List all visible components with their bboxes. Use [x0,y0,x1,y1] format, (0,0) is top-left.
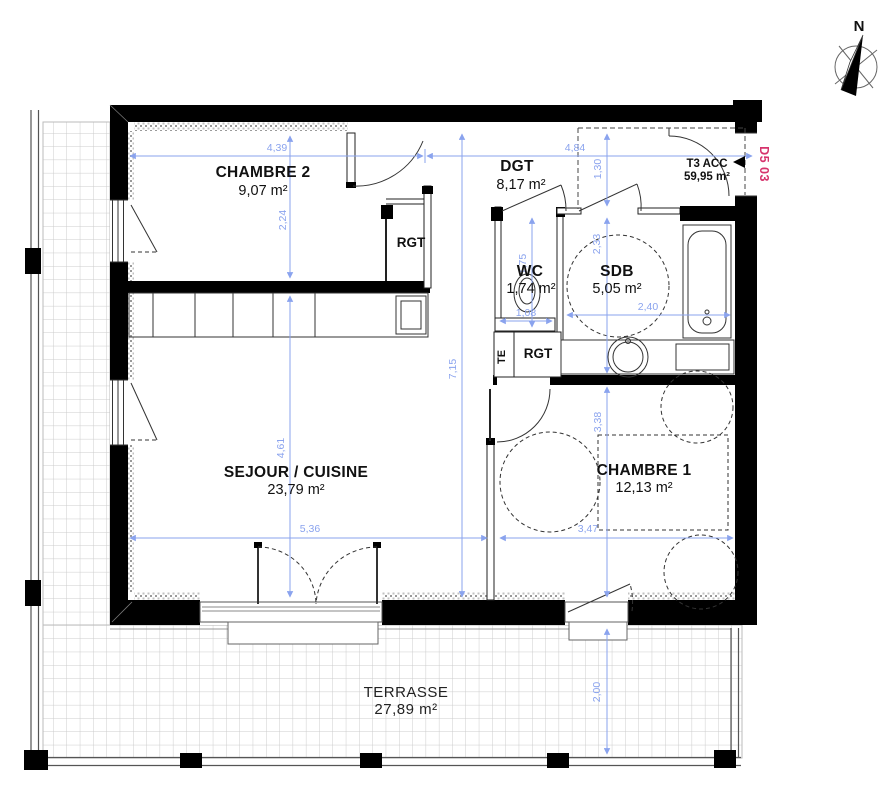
room-label-sdb: SDB [600,263,634,280]
room-label-wc: WC [517,263,543,280]
room-label-chambre1: CHAMBRE 1 [597,462,692,479]
door-chambre2 [346,133,423,188]
room-area-chambre1: 12,13 m² [615,480,672,496]
room-label-terrasse: TERRASSE [364,684,449,701]
dim-chambre1-height: 3,38 [592,412,604,433]
dim-interior-total-height: 7,15 [447,359,459,380]
room-label-sejour: SEJOUR / CUISINE [224,464,368,481]
room-area-sdb: 5,05 m² [592,281,641,297]
dim-sejour-width: 5,36 [300,523,321,535]
dim-entry-depth: 1,30 [592,159,604,180]
railing-post [25,248,41,274]
room-area-wc: 1,74 m² [506,281,555,297]
dim-sejour-height: 4,61 [275,438,287,459]
unit-area-label: 59,95 m² [684,171,730,183]
closet-label-te: TE [496,350,508,364]
floor-plan: 4,39 4,84 2,24 4,61 7,15 1,30 2,33 3,38 … [0,0,890,800]
railing-post [360,753,382,768]
terrace-door-opening [565,600,628,640]
bathtub [683,225,731,338]
railing-post [714,750,736,768]
exterior-walls [110,100,762,644]
dim-terrasse-depth: 2,00 [591,682,603,703]
fixtures [129,128,745,609]
kitchen-counter [129,293,428,337]
dim-chambre1-width: 3,47 [578,523,599,535]
room-label-dgt: DGT [500,158,534,175]
dim-hall-width: 4,84 [565,142,586,154]
window-sejour [110,380,157,445]
railing-post [25,580,41,606]
railing-post [180,753,202,768]
floor-plan-page: 4,39 4,84 2,24 4,61 7,15 1,30 2,33 3,38 … [0,0,890,800]
plan-ref-label: D5 03 [757,146,771,182]
railing-post [24,750,48,770]
door-sdb [579,184,641,211]
unit-type-label: T3 ACC [686,158,727,170]
room-area-chambre2: 9,07 m² [238,183,287,199]
compass-rose-icon: N [835,18,877,96]
french-doors [254,542,381,604]
dim-wc-width: 1,08 [516,307,537,319]
room-area-dgt: 8,17 m² [496,177,545,193]
room-area-terrasse: 27,89 m² [374,701,437,718]
wc-shelf [495,318,555,331]
closet-label-rgt-bedroom: RGT [397,235,426,250]
dim-chambre2-width: 4,39 [267,142,288,154]
window-chambre2 [110,200,157,262]
turning-circle-chambre1 [500,432,600,532]
north-label: N [854,18,865,35]
railing-post [547,753,569,768]
room-label-chambre2: CHAMBRE 2 [216,164,311,181]
dim-chambre2-height: 2,24 [277,210,289,231]
dim-sdb-height: 2,33 [591,234,603,255]
dim-sdb-width: 2,40 [638,301,659,313]
door-chambre1 [490,389,550,442]
closet-label-rgt-hall: RGT [524,346,553,361]
bathroom-vanity [561,337,734,377]
room-area-sejour: 23,79 m² [267,482,324,498]
